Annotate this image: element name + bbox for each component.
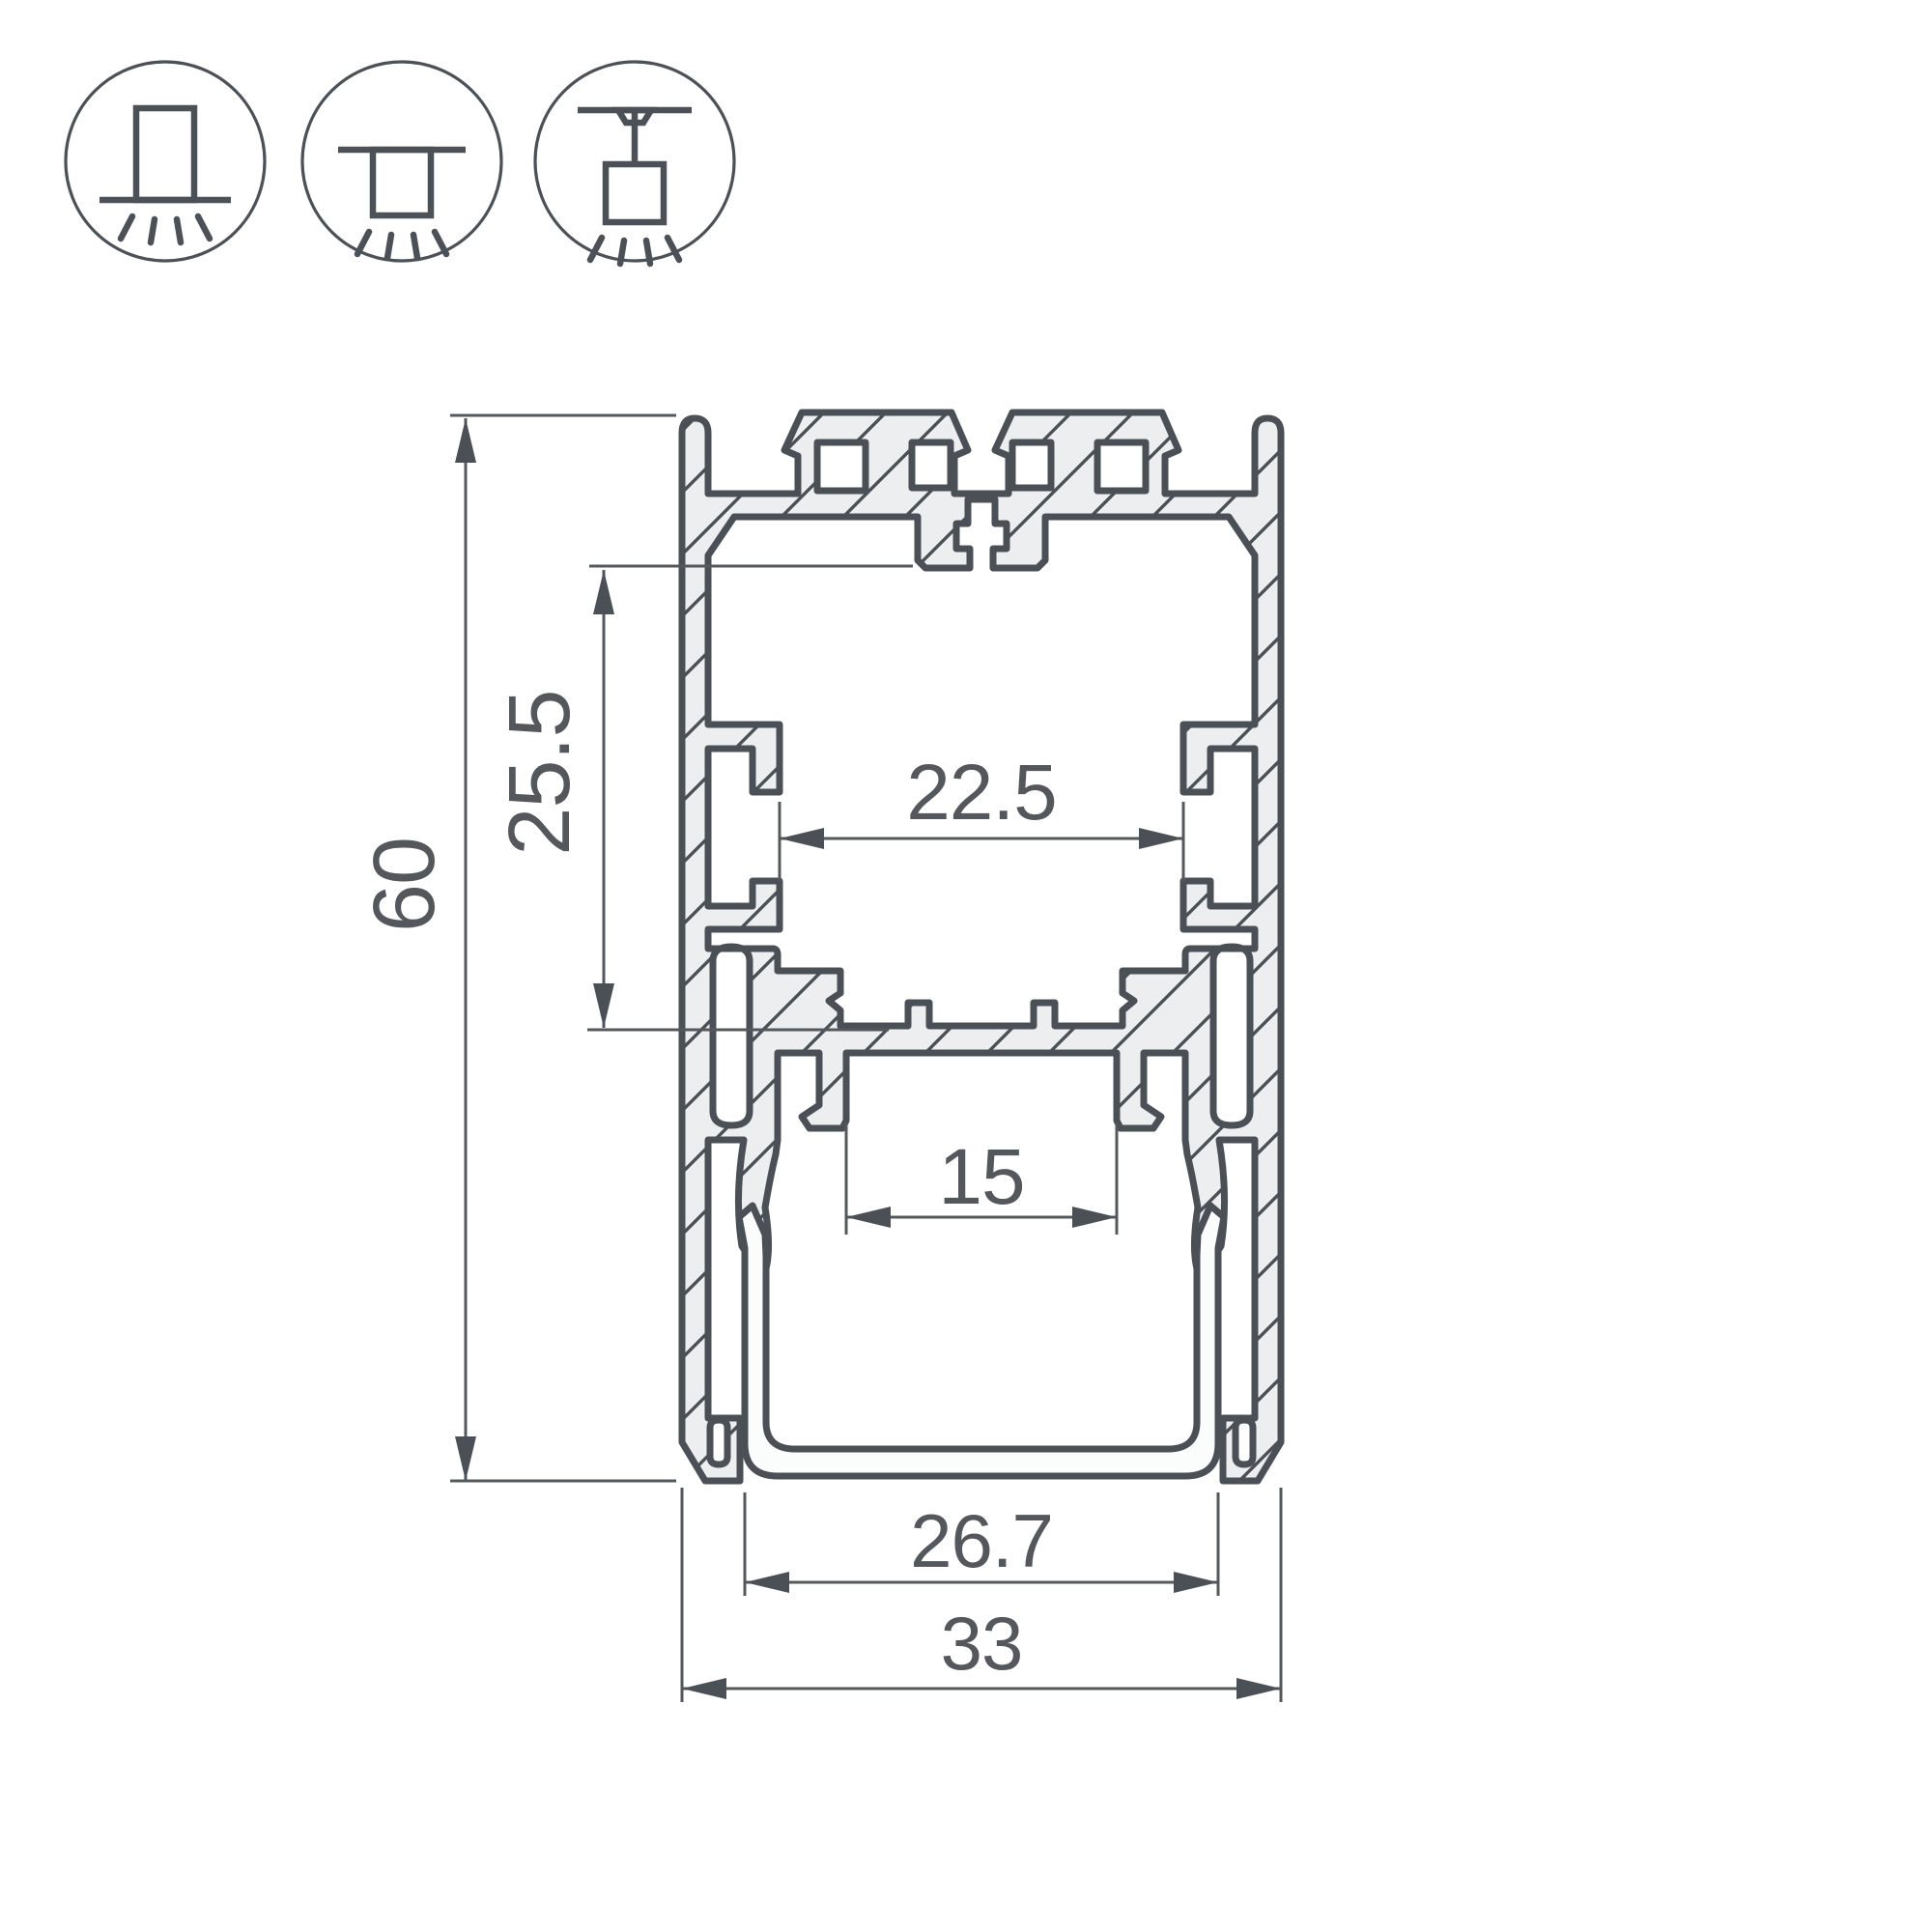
- dim-label-cavity-height: 25.5: [492, 690, 588, 855]
- arrowhead-left-icon: [682, 1678, 726, 1699]
- arrowhead-up-icon: [593, 570, 614, 614]
- suspended-mount-icon: [535, 62, 734, 264]
- arrowhead-down-icon: [593, 983, 614, 1028]
- arrowhead-left-icon: [780, 828, 824, 849]
- dimension-led-shelf-width: 15: [846, 1123, 1117, 1235]
- dim-label-overall-height: 60: [356, 838, 453, 932]
- arrowhead-right-icon: [1072, 1207, 1117, 1228]
- arrowhead-right-icon: [1139, 828, 1183, 849]
- dimension-diffuser-width: 26.7: [745, 1492, 1218, 1596]
- surface-mount-icon: [66, 62, 265, 261]
- arrowhead-down-icon: [455, 1436, 476, 1481]
- dimension-overall-height: 60: [356, 415, 676, 1481]
- profile-cross-section-drawing: 60 25.5 22.5 15 26.7: [0, 0, 1932, 1932]
- arrowhead-up-icon: [455, 418, 476, 463]
- dim-label-overall-width: 33: [941, 1601, 1023, 1686]
- dim-label-inner-width: 22.5: [906, 749, 1057, 837]
- light-rays: [357, 232, 446, 258]
- diffuser-cover: [739, 1206, 1224, 1476]
- light-rays: [121, 216, 210, 242]
- dim-label-led-shelf-width: 15: [938, 1133, 1024, 1221]
- arrowhead-right-icon: [1174, 1572, 1218, 1593]
- arrowhead-left-icon: [846, 1207, 891, 1228]
- arrowhead-left-icon: [745, 1572, 789, 1593]
- recessed-mount-icon: [302, 62, 501, 261]
- dim-label-diffuser-width: 26.7: [910, 1498, 1053, 1583]
- arrowhead-right-icon: [1236, 1678, 1281, 1699]
- technical-drawing-page: 60 25.5 22.5 15 26.7: [0, 0, 1932, 1932]
- dimension-inner-width: 22.5: [780, 749, 1183, 881]
- mount-icons-row: [66, 62, 734, 264]
- aluminium-profile-body: [682, 412, 1281, 1481]
